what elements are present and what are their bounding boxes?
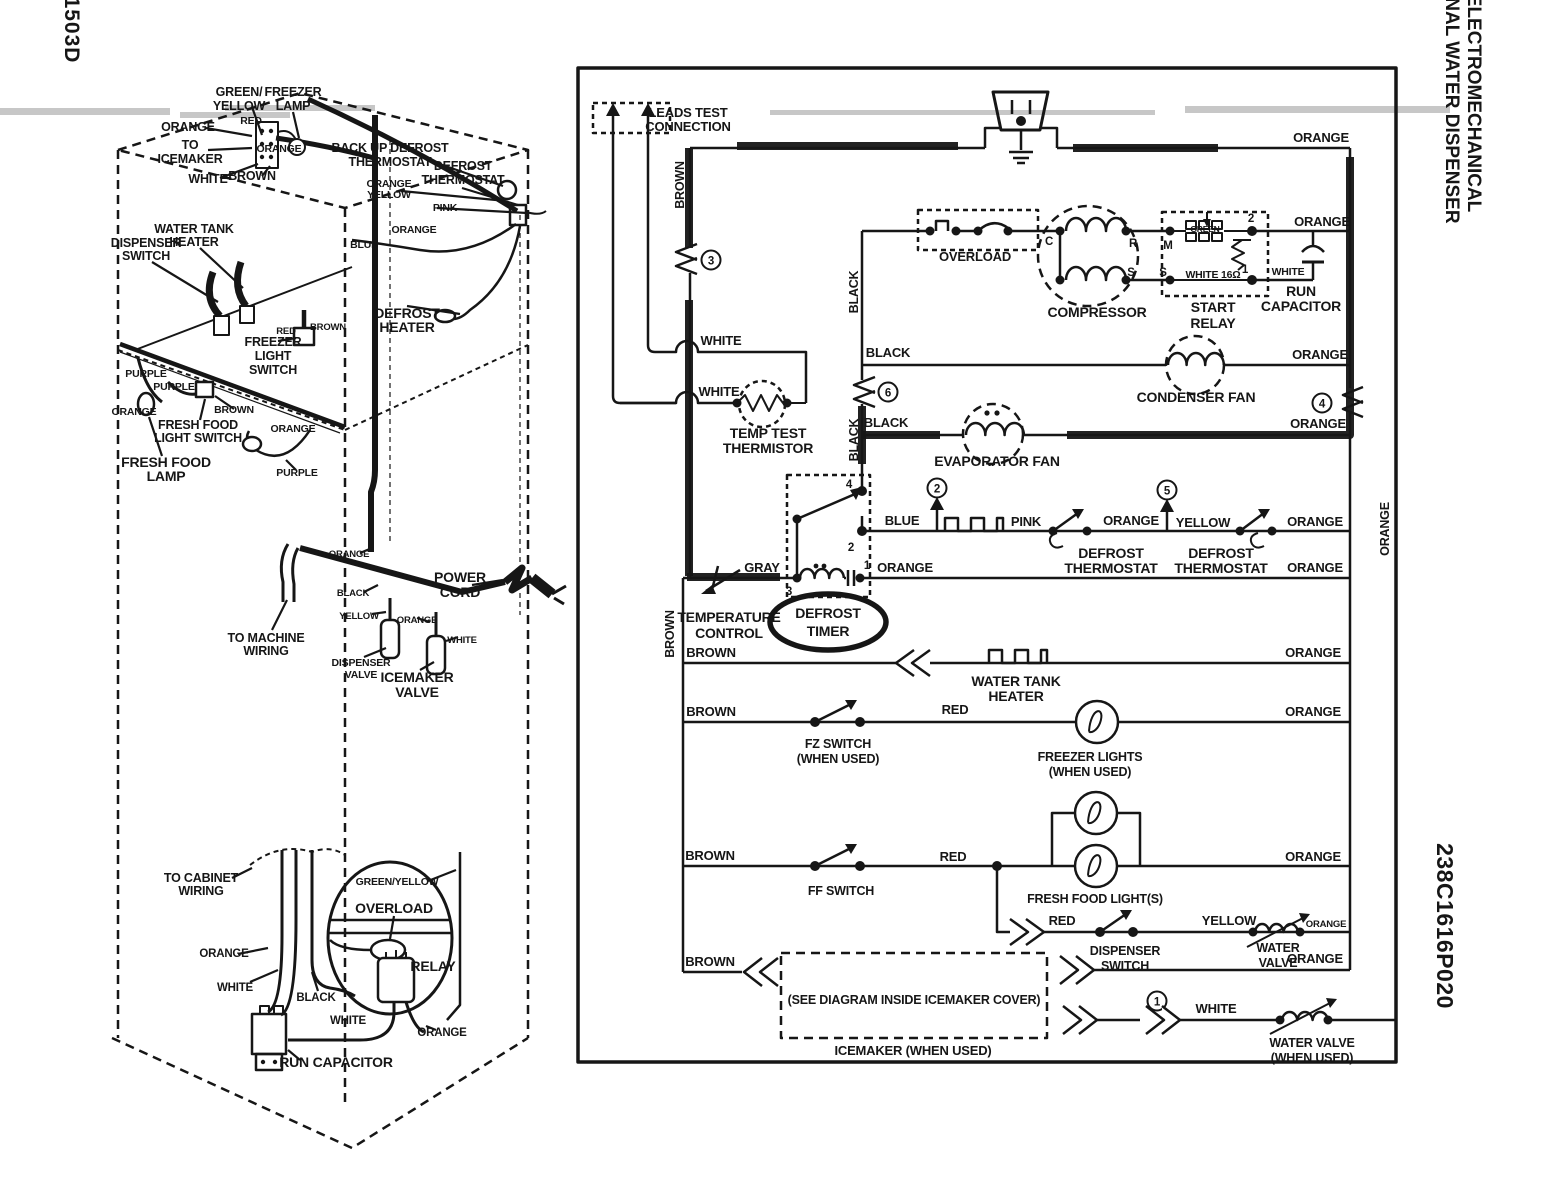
compressor-detail-drawing: TO CABINET WIRING GREEN/YELLOW OVERLOAD … [164,849,467,1070]
orange-wire-label: ORANGE [1306,919,1347,930]
black-label: BLACK [337,588,370,599]
orange-wire-label: ORANGE [1287,951,1343,966]
white-label: WHITE [188,172,227,186]
defrost-thermostat-label: THERMOSTAT [1064,560,1158,576]
yellow-wire-label: YELLOW [1176,515,1231,530]
diagram-canvas: 1503D TMNF - 22 ELECTROMECHANICAL WITH I… [0,0,1553,1200]
to-cabinet-wiring-label: WIRING [178,884,223,898]
start-relay-label: START [1191,299,1236,315]
condenser-fan-row: BLACK ORANGE CONDENSER FAN [862,336,1350,405]
orange-wire-label: ORANGE [1294,214,1350,229]
purple-label: PURPLE [276,467,318,479]
fresh-food-lamp-symbol [1075,845,1117,887]
freezer-light-switch-label: LIGHT [255,349,292,363]
overload-label: OVERLOAD [355,900,433,916]
temp-test-thermistor-circuit: WHITE WHITE TEMP TEST THERMISTOR [620,333,813,456]
defrost-timer-highlight-ellipse [770,594,886,650]
orange-wire-label: ORANGE [1285,645,1341,660]
terminal-c: C [1045,236,1053,248]
dispenser-switch-label: DISPENSER [111,236,182,250]
terminal-2: 2 [1248,213,1254,225]
yellow-label: YELLOW [339,611,379,622]
to-machine-wiring-label: WIRING [243,644,288,658]
water-valve-when-used-label: (WHEN USED) [1271,1051,1354,1065]
orange-wire-label: ORANGE [1292,347,1348,362]
wiring-diagram-sheet: 1503D TMNF - 22 ELECTROMECHANICAL WITH I… [0,0,1553,1200]
fresh-food-lamp-label: LAMP [147,468,186,484]
run-capacitor-label: CAPACITOR [1261,298,1341,314]
fresh-food-lights-row: BROWN FF SWITCH RED FRESH FOOD LIGHT(S) … [683,792,1350,906]
red-wire-label: RED [1049,913,1076,928]
fz-switch-label: (WHEN USED) [797,752,880,766]
orange-wire-label: ORANGE [1287,514,1343,529]
water-tank-heater-label: HEATER [988,688,1043,704]
water-tank-heater-label: WATER TANK [971,673,1060,689]
test-point-2: 2 [934,484,940,496]
fresh-food-lights-label: FRESH FOOD LIGHT(S) [1027,892,1163,906]
terminal-s: S [1127,267,1135,279]
orange-wire-label: ORANGE [1285,849,1341,864]
power-cord-label: CORD [440,584,481,600]
white-label: WHITE [217,982,254,994]
gray-wire-label: GRAY [744,560,780,575]
blue-label: BLUE [350,239,378,251]
dispenser-valve-label: DISPENSER [332,657,391,669]
compressor-circuit: OVERLOAD C R S COMPRESSOR GREEN WHITE 16… [862,206,1350,331]
orange-wire-label: ORANGE [1285,704,1341,719]
defrost-thermostat-label: DEFROST [1078,545,1144,561]
test-point-5: 5 [1164,486,1171,498]
freezer-lights-label: FREEZER LIGHTS [1038,750,1143,764]
brown-wire-label: BROWN [686,645,736,660]
icemaker-valve-label: ICEMAKER [380,669,453,685]
green-yellow-label: GREEN/ [216,85,263,99]
condenser-fan-label: CONDENSER FAN [1137,389,1256,405]
backup-defrost-thermostat-label: BACK UP DEFROST [332,141,449,155]
green-yellow-label: YELLOW [213,99,266,113]
orange-label: ORANGE [392,224,437,236]
water-tank-heater-label: WATER TANK [154,222,234,236]
orange-wire-label: ORANGE [1103,513,1159,528]
terminal-m: M [1163,240,1172,252]
freezer-light-switch-label: FREEZER [245,335,302,349]
red-wire-label: RED [942,702,969,717]
orange-wire-label: ORANGE [877,560,933,575]
brown-wire-label: BROWN [685,848,735,863]
white-wire-label: WHITE [701,333,742,348]
fz-switch-label: FZ SWITCH [805,737,871,751]
orange-wire-label: ORANGE [1293,130,1349,145]
dispenser-switch-label: DISPENSER [1090,944,1161,958]
orange-wire-label: ORANGE [1290,416,1346,431]
defrost-timer-label: DEFROST [795,605,861,621]
orange-wire-label: ORANGE [1287,560,1343,575]
start-relay-label: RELAY [1190,315,1236,331]
brown-label: BROWN [228,169,276,183]
temperature-control-label: CONTROL [695,625,763,641]
dispenser-valve-label: VALVE [345,669,378,681]
black-wire-label: BLACK [864,415,909,430]
schematic-border [578,68,1396,1062]
overload-label: OVERLOAD [939,249,1011,264]
leads-test-label: CONNECTION [645,119,730,134]
green-yellow-label: GREEN/YELLOW [356,876,439,888]
sheet-title-line2: WITH INTERNAL WATER DISPENSER [1441,0,1462,224]
purple-label: PURPLE [153,381,195,393]
defrost-thermostat-label: THERMOSTAT [422,173,506,187]
orange-bus-label: ORANGE [1378,502,1392,556]
power-cord-label: POWER [434,569,486,585]
orange-label: ORANGE [329,549,370,560]
fresh-food-lamp-symbol [1075,792,1117,834]
freezer-lamp-label: FREEZER [265,85,322,99]
power-input-row: 3 BROWN ORANGE [673,92,1350,578]
yellow-wire-label: YELLOW [1202,913,1257,928]
relay-resistor-label: WHITE 16Ω [1185,269,1240,281]
fridge-labels: GREEN/ YELLOW FREEZER LAMP ORANGE RED TO… [111,85,505,700]
freezer-lamp-label: LAMP [276,99,311,113]
white-wire-label: WHITE [699,384,740,399]
brown-wire-label: BROWN [686,704,736,719]
icemaker-note-label: (SEE DIAGRAM INSIDE ICEMAKER COVER) [788,993,1041,1007]
orange-label: ORANGE [161,120,215,134]
black-wire-label: BLACK [866,345,911,360]
orange-label: ORANGE [271,423,316,435]
to-icemaker-label: TO [182,138,199,152]
sheet-number: 1503D [60,0,83,63]
brown-label: BROWN [214,404,254,416]
freezer-lights-row: BROWN FZ SWITCH (WHEN USED) RED FREEZER … [683,700,1350,779]
orange-label: ORANGE [417,1027,467,1039]
test-point-4: 4 [1319,399,1326,411]
evaporator-fan-label: EVAPORATOR FAN [934,453,1060,469]
backup-defrost-thermostat-label: THERMOSTAT [349,155,433,169]
orange-label: ORANGE [257,143,302,155]
fridge-outline [112,93,528,1148]
timer-terminal-4: 4 [846,479,853,491]
defrost-timer-label: TIMER [807,623,850,639]
brown-label: BROWN [310,322,346,333]
defrost-thermostat-label: DEFROST [434,159,493,173]
temp-test-thermistor-label: THERMISTOR [723,440,813,456]
terminal-1: 1 [1242,264,1249,276]
part-number: 238C1616P020 [1432,843,1458,1009]
brown-wire-label: BROWN [663,610,677,658]
icemaker-label: ICEMAKER (WHEN USED) [834,1043,991,1058]
white-wire-label: WHITE [1272,266,1305,278]
freezer-lamp-symbol [1076,701,1118,743]
freezer-light-switch-label: SWITCH [249,363,297,377]
white-label: WHITE [330,1015,367,1027]
compressor-label: COMPRESSOR [1047,304,1146,320]
purple-label: PURPLE [125,368,167,380]
relay-coil-label: GREEN [1190,224,1219,234]
blue-wire-label: BLUE [885,513,920,528]
pink-label: PINK [433,202,458,214]
run-capacitor-symbol [252,1014,286,1054]
brown-wire-label: BROWN [673,161,687,209]
test-point-3: 3 [708,256,714,268]
fresh-food-light-switch-symbol [196,382,213,397]
freezer-lights-label: (WHEN USED) [1049,765,1132,779]
water-valve-when-used-label: WATER VALVE [1269,1036,1354,1050]
defrost-thermostat-label: THERMOSTAT [1174,560,1268,576]
fresh-food-light-switch-label: LIGHT SWITCH [154,431,242,445]
orange-label: ORANGE [112,406,157,418]
relay-symbol [378,958,414,1002]
to-icemaker-label: ICEMAKER [157,152,222,166]
fresh-food-light-switch-label: FRESH FOOD [158,418,238,432]
temp-test-thermistor-label: TEMP TEST [730,425,807,441]
orange-yellow-label: YELLOW [367,189,411,201]
test-point-1: 1 [1154,997,1161,1009]
timer-terminal-1: 1 [864,560,871,572]
relay-label: RELAY [410,958,456,974]
red-wire-label: RED [940,849,967,864]
ff-switch-label: FF SWITCH [808,884,874,898]
leads-test-label: LEADS TEST [649,105,728,120]
black-label: BLACK [296,992,336,1004]
red-label: RED [240,115,262,127]
terminal-r: R [1129,238,1138,250]
timer-terminal-3: 3 [786,586,792,598]
orange-label: ORANGE [397,615,438,626]
defrost-heater-label: HEATER [379,319,434,335]
white-wire-label: WHITE [1196,1001,1237,1016]
white-label: WHITE [447,635,477,646]
terminal-s: S [1159,267,1167,279]
timer-terminal-2: 2 [848,542,854,554]
temperature-control-label: TEMPERATURE [677,609,780,625]
orange-label: ORANGE [199,948,249,960]
black-wire-label: BLACK [847,270,861,313]
run-capacitor-label: RUN [1286,283,1316,299]
pink-wire-label: PINK [1011,514,1042,529]
left-brown-bus: BROWN [663,578,683,972]
to-machine-wiring-label: TO MACHINE [228,631,305,645]
defrost-thermostat-label: DEFROST [1188,545,1254,561]
sheet-title-line1: TMNF - 22 ELECTROMECHANICAL [1463,0,1484,213]
water-tank-heater-row: BROWN WATER TANK HEATER ORANGE [683,645,1350,704]
power-plug-symbol [985,92,1057,163]
run-capacitor-label: RUN CAPACITOR [279,1054,393,1070]
test-point-6: 6 [885,388,891,400]
to-cabinet-wiring-label: TO CABINET [164,871,239,885]
dispenser-switch-label: SWITCH [122,249,170,263]
defrost-heater-row: BLUE 2 PINK DEFROST THERMOSTAT ORANGE 5 … [862,479,1350,577]
brown-wire-label: BROWN [685,954,735,969]
icemaker-valve-label: VALVE [395,684,439,700]
wiring-schematic: LEADS TEST CONNECTION 3 BROWN ORANGE [578,68,1396,1065]
red-label: RED [276,326,296,337]
